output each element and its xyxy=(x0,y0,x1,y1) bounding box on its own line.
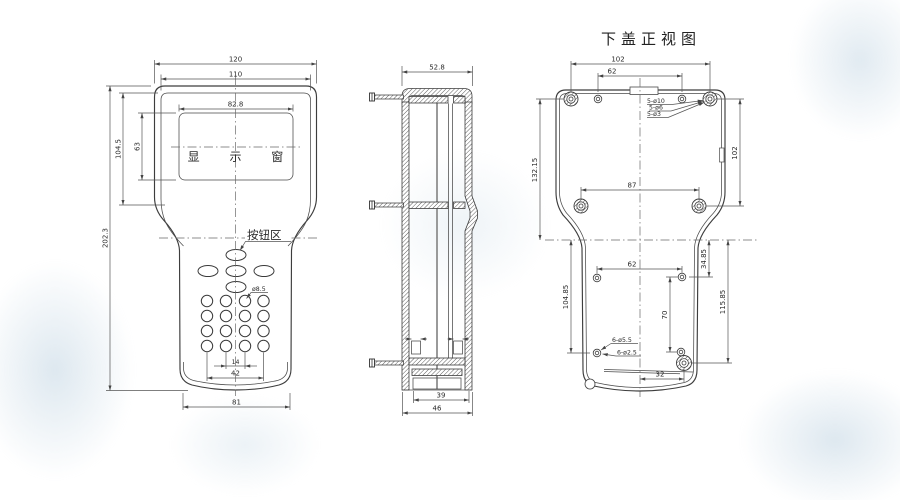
screw-boss-tube xyxy=(449,104,453,359)
inner-bottom-rib xyxy=(604,370,693,374)
svg-text:46: 46 xyxy=(433,405,442,413)
screw-boss xyxy=(564,92,578,106)
dim-side-bottom-inner: 39 xyxy=(414,391,470,403)
boss-band xyxy=(409,202,448,209)
view-title: 下盖正视图 xyxy=(601,30,701,48)
keypad-button xyxy=(201,310,212,321)
screw-boss xyxy=(677,356,692,371)
keypad-button xyxy=(201,295,212,306)
keypad-button xyxy=(258,310,269,321)
function-button xyxy=(254,266,274,277)
button-area-callout: 按钮区 xyxy=(240,228,291,251)
button-area-label: 按钮区 xyxy=(247,228,282,242)
mount-hole xyxy=(594,95,602,103)
keypad-button xyxy=(220,295,231,306)
function-button xyxy=(226,282,246,293)
screw-boss xyxy=(574,199,588,213)
screw-boss xyxy=(692,199,706,213)
keypad-button xyxy=(258,325,269,336)
dim-bottom-width: 81 xyxy=(183,393,290,410)
dim-key-pitch: 14 xyxy=(214,353,257,370)
front-view: 显 示 窗 按钮区 120 110 82.8 xyxy=(102,56,318,411)
top-slot xyxy=(630,87,658,95)
cover-outline xyxy=(556,90,725,391)
boss-band xyxy=(454,202,466,209)
dim-window-width: 82.8 xyxy=(179,101,293,112)
svg-text:5-ø3: 5-ø3 xyxy=(647,111,661,118)
mount-hole xyxy=(678,95,686,103)
svg-text:52.8: 52.8 xyxy=(429,64,445,72)
svg-text:63: 63 xyxy=(134,142,142,151)
svg-text:104.5: 104.5 xyxy=(115,139,123,159)
button-diameter-label: ø8.5 xyxy=(252,286,266,293)
keypad-button xyxy=(220,325,231,336)
screw-boss xyxy=(703,92,717,106)
svg-text:102: 102 xyxy=(731,146,739,159)
dim-side-top-width: 52.8 xyxy=(402,64,473,87)
boss-band xyxy=(454,97,466,104)
svg-text:81: 81 xyxy=(232,399,241,407)
keypad-button xyxy=(220,340,231,351)
boss-band xyxy=(409,97,448,104)
mount-hole xyxy=(677,348,685,356)
bottom-cover-band xyxy=(412,369,462,376)
keypad-button xyxy=(239,310,250,321)
assembly-screw xyxy=(370,359,404,367)
display-window-label: 显 示 窗 xyxy=(188,150,297,164)
bottom-cover-band xyxy=(409,358,465,365)
svg-text:42: 42 xyxy=(231,370,240,378)
keypad-button xyxy=(258,295,269,306)
svg-text:62: 62 xyxy=(628,261,637,269)
keypad-button xyxy=(201,325,212,336)
function-button xyxy=(226,266,246,277)
keypad-button xyxy=(258,340,269,351)
keypad-button xyxy=(220,310,231,321)
dim-hole-offset-top: 34.85 xyxy=(689,240,713,277)
keypad-button xyxy=(201,340,212,351)
svg-text:82.8: 82.8 xyxy=(228,101,244,109)
svg-text:14: 14 xyxy=(232,359,240,366)
svg-text:62: 62 xyxy=(608,68,617,76)
side-right-wall xyxy=(465,102,478,390)
svg-text:39: 39 xyxy=(437,392,446,400)
function-button xyxy=(226,250,246,261)
mount-hole xyxy=(678,273,686,281)
keypad-button xyxy=(239,295,250,306)
side-view: 52.8 39 46 xyxy=(370,64,478,417)
keypad-button xyxy=(239,325,250,336)
svg-text:202.3: 202.3 xyxy=(102,228,110,248)
assembly-screw xyxy=(370,201,404,209)
function-button xyxy=(198,266,218,277)
handle-hole-callout: 6-ø5.5 6-ø2.5 xyxy=(601,337,641,357)
svg-text:6-ø2.5: 6-ø2.5 xyxy=(617,350,637,357)
dim-hole-pitch: 70 xyxy=(661,277,678,352)
edge-notch xyxy=(720,148,725,162)
mount-hole xyxy=(593,274,601,282)
dim-height-left: 132.15 xyxy=(531,99,564,240)
technical-drawing-sheet: 显 示 窗 按钮区 120 110 82.8 xyxy=(0,0,900,500)
dim-hole-span: 62 xyxy=(597,261,682,274)
svg-text:115.85: 115.85 xyxy=(719,290,727,315)
side-left-wall xyxy=(402,102,409,390)
svg-text:70: 70 xyxy=(661,311,669,320)
assembly-screw xyxy=(370,93,404,101)
strap-hole xyxy=(585,379,595,389)
svg-text:102: 102 xyxy=(611,56,624,64)
dim-boss-span: 102 xyxy=(571,56,710,93)
svg-text:104.85: 104.85 xyxy=(562,285,570,310)
display-window xyxy=(179,113,293,180)
boss-hole-callout: 5-ø10 5-ø6 5-ø3 xyxy=(647,98,704,118)
drawing-svg: 显 示 窗 按钮区 120 110 82.8 xyxy=(0,0,900,500)
mount-hole xyxy=(593,349,601,357)
svg-text:6-ø5.5: 6-ø5.5 xyxy=(612,337,632,344)
svg-text:120: 120 xyxy=(229,56,242,64)
svg-text:32: 32 xyxy=(656,371,665,379)
svg-text:110: 110 xyxy=(229,71,242,79)
svg-text:132.15: 132.15 xyxy=(531,158,539,183)
svg-text:87: 87 xyxy=(628,182,637,190)
keypad-button xyxy=(239,340,250,351)
svg-text:34.85: 34.85 xyxy=(700,249,708,269)
bottom-cover-view: 下盖正视图 xyxy=(531,30,757,397)
dim-overall-height: 202.3 xyxy=(102,86,189,391)
